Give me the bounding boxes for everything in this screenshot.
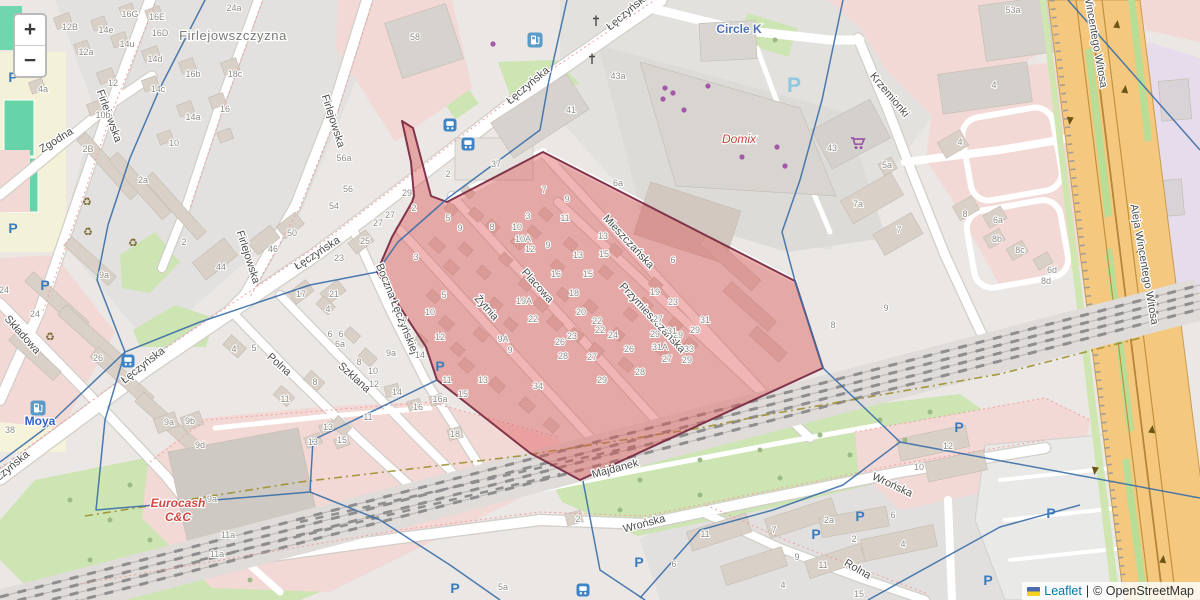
house-number: 16a (432, 394, 447, 404)
house-number: 9a (386, 348, 396, 358)
fuel-icon (528, 33, 543, 52)
house-number: 8b (992, 234, 1002, 244)
house-number: 11 (560, 213, 569, 223)
house-number: 44 (216, 262, 226, 272)
house-number: 27 (653, 314, 663, 324)
house-number: 8 (830, 320, 835, 330)
house-number: 12 (435, 332, 445, 342)
house-number: 15 (854, 589, 864, 599)
house-number: 18 (569, 288, 579, 298)
zoom-in-button[interactable]: + (15, 15, 45, 45)
house-number: 27 (385, 210, 395, 220)
house-number: 5a (882, 160, 892, 170)
house-number: 4 (991, 80, 996, 90)
house-number: 29 (650, 329, 660, 339)
house-number: 12B (62, 22, 78, 32)
house-number: 2 (575, 514, 580, 524)
shop-dot-icon (660, 90, 666, 106)
house-number: 6 (890, 510, 895, 520)
house-number: 11 (700, 529, 709, 539)
house-number: 8 (312, 377, 317, 387)
house-number: 10A (515, 234, 531, 244)
house-number: 11a (210, 549, 224, 559)
house-number: 10b (95, 110, 110, 120)
house-number: 13 (573, 250, 583, 260)
house-number: 27 (587, 352, 597, 362)
bus-icon (462, 138, 475, 155)
house-number: 13 (323, 422, 333, 432)
house-number: 16G (121, 9, 138, 19)
house-number: 22 (528, 314, 538, 324)
poi-label: Eurocash (151, 496, 206, 510)
house-number: 11 (363, 412, 372, 422)
house-number: 16b (185, 69, 200, 79)
house-number: 2 (411, 203, 416, 213)
fuel-icon (31, 401, 46, 420)
house-number: 24 (0, 285, 9, 295)
house-number: 9 (883, 303, 888, 313)
house-number: 9 (564, 194, 569, 204)
house-number: 38 (5, 425, 15, 435)
poi-label: Circle K (716, 22, 762, 36)
shop-dot-icon (705, 77, 711, 93)
house-number: 24a (226, 3, 241, 13)
house-number: 11a (221, 530, 235, 540)
house-number: 15 (599, 249, 609, 259)
house-number: 7 (402, 316, 407, 326)
house-number: 43 (827, 143, 837, 153)
house-number: 6d (1047, 265, 1057, 275)
house-number: 2B (82, 144, 93, 154)
house-number: 29 (402, 188, 412, 198)
house-number: 6a (993, 215, 1003, 225)
house-number: 4a (38, 84, 48, 94)
house-number: 28 (558, 351, 568, 361)
house-number: 9 (794, 552, 799, 562)
house-number: 37 (491, 159, 501, 169)
house-number: 3 (525, 211, 530, 221)
house-number: 13 (308, 437, 318, 447)
house-number: 8 (489, 222, 494, 232)
house-number: 7 (541, 185, 546, 195)
house-number: 25 (360, 236, 370, 246)
house-number: 13 (598, 231, 608, 241)
house-number: 23 (567, 331, 577, 341)
house-number: 14 (415, 350, 425, 360)
house-number: 29 (682, 355, 692, 365)
house-number: 28 (635, 367, 645, 377)
house-number: 26 (624, 344, 634, 354)
house-number: 3 (413, 252, 418, 262)
map-tiles: Firlejowszczyzna ŁęczyńskaŁęczyńskaŁęczy… (0, 0, 1200, 600)
house-number: 18 (450, 429, 460, 439)
house-number: 9a (207, 494, 217, 504)
house-number: 11 (442, 375, 451, 385)
house-number: 34 (533, 381, 543, 391)
house-number: 11 (280, 394, 289, 404)
house-number: 23 (334, 253, 344, 263)
shop-dot-icon (774, 138, 780, 154)
poi-label: Domix (722, 132, 757, 146)
house-number: 16E (149, 12, 165, 22)
house-number: 14a (185, 112, 200, 122)
house-number: 9 (507, 345, 512, 355)
house-number: 15 (458, 389, 468, 399)
shop-dot-icon (670, 84, 676, 100)
house-number: 33 (684, 344, 694, 354)
bus-icon (577, 584, 590, 600)
house-number: 5a (498, 582, 508, 592)
house-number: 50 (287, 228, 297, 238)
house-number: 10 (512, 222, 522, 232)
house-number: 23 (668, 297, 678, 307)
house-number: 2a (138, 175, 148, 185)
house-number: 9a (99, 270, 109, 280)
house-number: 4 (900, 539, 905, 549)
house-number: 14d (147, 54, 162, 64)
house-number: 26 (555, 337, 565, 347)
house-number: 12 (525, 244, 535, 254)
house-number: 6 (671, 559, 676, 569)
attribution-separator: | (1086, 584, 1089, 598)
house-number: 20 (576, 307, 586, 317)
house-number: 53a (1005, 5, 1020, 15)
house-number: 12 (108, 78, 118, 88)
house-number: 10 (425, 307, 435, 317)
house-number: 6 (338, 329, 343, 339)
place-labels: Firlejowszczyzna (179, 28, 287, 43)
house-number: 6 (327, 329, 332, 339)
house-number: 7a (853, 199, 863, 209)
house-number: 11 (818, 560, 827, 570)
house-number: 6a (613, 178, 623, 188)
house-number: 19A (516, 296, 532, 306)
house-number: 24 (608, 330, 618, 340)
house-number: 31 (667, 326, 677, 336)
house-number: 8c (1015, 245, 1025, 255)
worship-icon (588, 53, 597, 69)
house-number: 10 (169, 138, 179, 148)
house-number: 8 (962, 209, 967, 219)
house-number: 5 (445, 213, 450, 223)
house-number: 4 (957, 137, 962, 147)
house-number: 4 (325, 304, 330, 314)
cart-icon (850, 136, 866, 154)
house-number: 24 (30, 309, 40, 319)
zoom-control: + − (13, 13, 47, 78)
map-canvas[interactable]: Firlejowszczyzna ŁęczyńskaŁęczyńskaŁęczy… (0, 0, 1200, 600)
house-number: 16D (152, 28, 169, 38)
house-number: 29 (597, 375, 607, 385)
house-number: 16 (220, 104, 230, 114)
osm-link[interactable]: © OpenStreetMap (1093, 584, 1194, 598)
bus-icon (444, 119, 457, 136)
house-number: 4 (780, 580, 785, 590)
house-number: 13 (478, 375, 488, 385)
house-number: 9a (164, 417, 174, 427)
house-number: 10 (914, 462, 924, 472)
house-number: 12a (78, 47, 93, 57)
house-number: 5 (251, 343, 256, 353)
house-number: 18c (228, 69, 243, 79)
attribution-bar: Leaflet | © OpenStreetMap (1022, 582, 1200, 600)
house-number: 14e (98, 25, 113, 35)
house-number: 2 (445, 169, 450, 179)
house-number: 14c (151, 84, 166, 94)
zoom-out-button[interactable]: − (15, 45, 45, 76)
house-number: 16 (551, 269, 561, 279)
house-number: 4 (231, 344, 236, 354)
shop-dot-icon (490, 35, 496, 51)
worship-icon (592, 15, 601, 31)
house-number: 56a (336, 153, 351, 163)
house-number: 27 (662, 354, 672, 364)
house-number: 29 (690, 325, 700, 335)
house-number: 14 (392, 387, 402, 397)
house-number: 21 (329, 289, 339, 299)
house-number: 2 (851, 534, 856, 544)
house-number: 46 (268, 244, 278, 254)
ukraine-flag-icon (1027, 587, 1040, 596)
house-number: 14u (119, 39, 134, 49)
poi-label: C&C (165, 510, 191, 524)
house-number: 9A (497, 334, 508, 344)
house-number: 5 (441, 290, 446, 300)
place-label: Firlejowszczyzna (179, 28, 287, 43)
house-number: 56 (343, 184, 353, 194)
house-number: 31 (700, 315, 710, 325)
house-number: 8 (356, 357, 361, 367)
house-number: 6 (670, 255, 675, 265)
shop-dot-icon (681, 101, 687, 117)
house-number: 15 (337, 435, 347, 445)
house-number: 17 (296, 289, 306, 299)
house-number: 26 (93, 353, 103, 363)
house-number: 22 (595, 325, 605, 335)
house-number: 10 (368, 366, 378, 376)
house-number: 9 (457, 223, 462, 233)
bus-icon (122, 355, 135, 372)
house-number: 16 (413, 402, 423, 412)
house-number: 12 (943, 441, 953, 451)
leaflet-link[interactable]: Leaflet (1044, 584, 1082, 598)
house-number: 2 (181, 237, 186, 247)
house-number: 9b (185, 416, 195, 426)
house-number: 31A (652, 342, 668, 352)
house-number: 19 (650, 287, 660, 297)
shop-dot-icon (782, 157, 788, 173)
house-number: 8d (1041, 276, 1051, 286)
house-number: 9d (195, 440, 205, 450)
house-number: 43a (610, 71, 625, 81)
house-number: 2a (824, 515, 834, 525)
house-number: 12 (369, 379, 379, 389)
house-number: 7 (896, 225, 901, 235)
house-number: 7 (771, 525, 776, 535)
house-number: 27 (373, 218, 383, 228)
shop-dot-icon (739, 148, 745, 164)
house-number: 9 (545, 240, 550, 250)
house-number: 41 (566, 105, 576, 115)
house-number: 15 (583, 269, 593, 279)
house-number: 6a (335, 339, 345, 349)
house-number: 58 (410, 32, 420, 42)
house-number: 54 (329, 201, 339, 211)
